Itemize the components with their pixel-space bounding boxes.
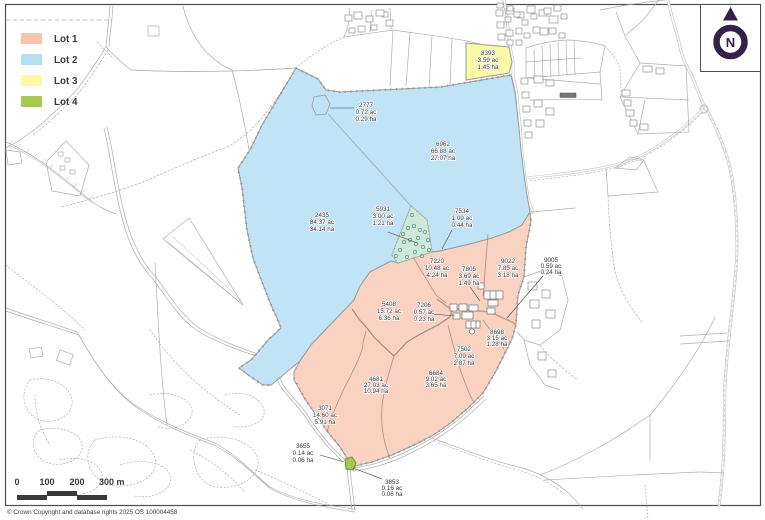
svg-text:7206: 7206 xyxy=(417,302,432,309)
svg-text:2.87 ha: 2.87 ha xyxy=(453,360,475,367)
svg-text:7.85 ac: 7.85 ac xyxy=(498,265,519,272)
svg-text:0.14 ac: 0.14 ac xyxy=(293,450,314,457)
svg-text:3.18 ha: 3.18 ha xyxy=(497,272,519,279)
svg-text:© Crown Copyright and database: © Crown Copyright and database rights 20… xyxy=(7,508,178,516)
svg-text:7805: 7805 xyxy=(462,266,477,273)
svg-text:Lot 3: Lot 3 xyxy=(54,76,78,87)
svg-text:0.24 ha: 0.24 ha xyxy=(540,269,562,276)
svg-text:N: N xyxy=(726,35,735,50)
svg-text:9022: 9022 xyxy=(501,258,516,265)
svg-text:0.29 ha: 0.29 ha xyxy=(355,116,377,123)
svg-text:3655: 3655 xyxy=(296,443,311,450)
svg-text:3.69 ac: 3.69 ac xyxy=(459,273,480,280)
svg-text:Lot 4: Lot 4 xyxy=(54,97,78,108)
svg-text:27.07 ha: 27.07 ha xyxy=(431,155,456,162)
svg-text:3.59 ac: 3.59 ac xyxy=(478,57,499,64)
svg-text:15.72 ac: 15.72 ac xyxy=(377,308,401,315)
svg-text:0.72 ac: 0.72 ac xyxy=(356,109,377,116)
svg-text:84.37 ac: 84.37 ac xyxy=(310,219,334,226)
svg-text:7502: 7502 xyxy=(457,346,472,353)
svg-text:1.45 ha: 1.45 ha xyxy=(477,64,499,71)
svg-text:34.14 ha: 34.14 ha xyxy=(310,226,335,233)
svg-text:0.57 ac: 0.57 ac xyxy=(414,309,435,316)
svg-text:5931: 5931 xyxy=(376,206,391,213)
svg-text:66.88 ac: 66.88 ac xyxy=(431,148,455,155)
svg-text:3.00 ac: 3.00 ac xyxy=(373,213,394,220)
svg-text:10.48 ac: 10.48 ac xyxy=(425,265,449,272)
svg-text:Lot 2: Lot 2 xyxy=(54,55,78,66)
svg-text:3.65 ha: 3.65 ha xyxy=(425,382,447,389)
svg-text:7.09 ac: 7.09 ac xyxy=(454,353,475,360)
svg-text:7534: 7534 xyxy=(455,208,470,215)
svg-text:300 m: 300 m xyxy=(99,477,125,487)
svg-text:Lot 1: Lot 1 xyxy=(54,34,78,45)
svg-text:6.36 ha: 6.36 ha xyxy=(378,315,400,322)
svg-text:0.06 ha: 0.06 ha xyxy=(292,457,314,464)
svg-text:5.91 ha: 5.91 ha xyxy=(314,419,336,426)
svg-text:1.09 ac: 1.09 ac xyxy=(452,215,473,222)
svg-text:0.44 ha: 0.44 ha xyxy=(451,222,473,229)
svg-text:1.28 ha: 1.28 ha xyxy=(486,341,508,348)
svg-text:2777: 2777 xyxy=(359,102,374,109)
svg-text:1.49 ha: 1.49 ha xyxy=(458,280,480,287)
svg-text:3071: 3071 xyxy=(318,405,333,412)
svg-text:4.24 ha: 4.24 ha xyxy=(426,272,448,279)
svg-text:5408: 5408 xyxy=(382,301,397,308)
svg-text:200: 200 xyxy=(69,477,84,487)
svg-text:1.21 ha: 1.21 ha xyxy=(372,220,394,227)
svg-text:0.23 ha: 0.23 ha xyxy=(413,316,435,323)
svg-text:7220: 7220 xyxy=(430,258,445,265)
svg-text:10.94 ha: 10.94 ha xyxy=(364,388,389,395)
svg-text:6962: 6962 xyxy=(436,141,451,148)
svg-text:2435: 2435 xyxy=(315,212,330,219)
svg-text:8393: 8393 xyxy=(481,50,496,57)
svg-text:0.06 ha: 0.06 ha xyxy=(381,491,403,498)
svg-text:100: 100 xyxy=(39,477,54,487)
svg-text:0: 0 xyxy=(14,477,19,487)
svg-text:14.60 ac: 14.60 ac xyxy=(313,412,337,419)
